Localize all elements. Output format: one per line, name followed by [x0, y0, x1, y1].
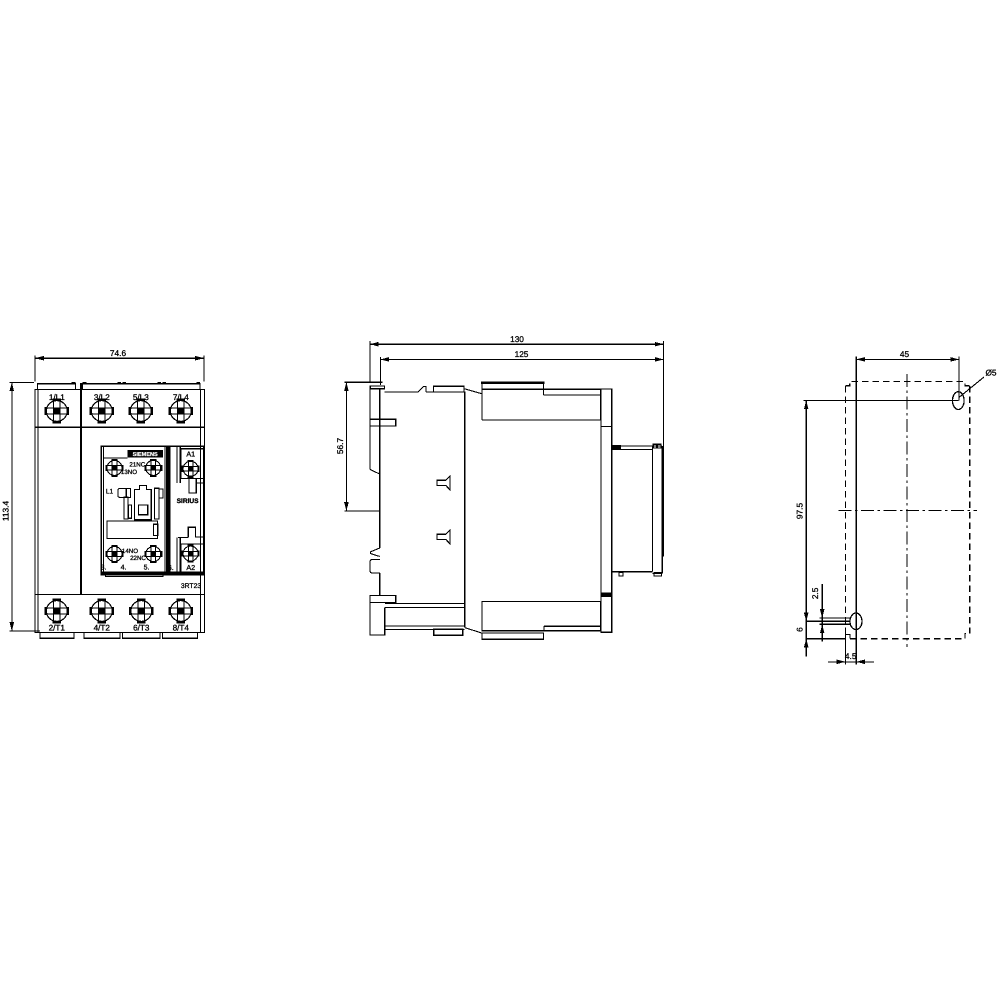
svg-text:14NO: 14NO [122, 548, 138, 555]
svg-text:4.: 4. [121, 564, 127, 571]
svg-text:3RT23: 3RT23 [181, 583, 201, 590]
svg-text:113.4: 113.4 [1, 501, 11, 522]
svg-text:SIRIUS: SIRIUS [177, 498, 200, 505]
svg-text:Ø5: Ø5 [985, 368, 996, 378]
svg-text:L1: L1 [106, 488, 114, 495]
svg-text:6: 6 [795, 627, 805, 632]
svg-text:3/L2: 3/L2 [94, 393, 110, 402]
svg-text:22NC: 22NC [130, 555, 146, 562]
svg-text:8/T4: 8/T4 [173, 624, 190, 633]
svg-text:3.: 3. [101, 564, 107, 571]
svg-text:21NC: 21NC [129, 462, 145, 469]
svg-text:130: 130 [510, 334, 524, 344]
svg-text:1/L1: 1/L1 [49, 393, 65, 402]
svg-text:SIEMENS: SIEMENS [133, 452, 158, 458]
svg-text:97.5: 97.5 [795, 503, 805, 520]
svg-text:2.5: 2.5 [810, 587, 820, 599]
svg-text:74.6: 74.6 [110, 348, 127, 358]
svg-text:5.: 5. [144, 564, 150, 571]
svg-text:13NO: 13NO [121, 469, 137, 476]
svg-text:125: 125 [515, 349, 529, 359]
svg-text:7/L4: 7/L4 [173, 393, 189, 402]
svg-text:4/T2: 4/T2 [94, 624, 111, 633]
svg-text:5/L3: 5/L3 [133, 393, 149, 402]
svg-text:A2: A2 [186, 563, 195, 572]
svg-text:A1: A1 [186, 450, 195, 459]
svg-text:4.5: 4.5 [845, 651, 857, 661]
svg-text:6/T3: 6/T3 [133, 624, 150, 633]
svg-text:56.7: 56.7 [335, 438, 345, 455]
svg-text:2/T1: 2/T1 [49, 624, 66, 633]
svg-text:45: 45 [900, 349, 910, 359]
